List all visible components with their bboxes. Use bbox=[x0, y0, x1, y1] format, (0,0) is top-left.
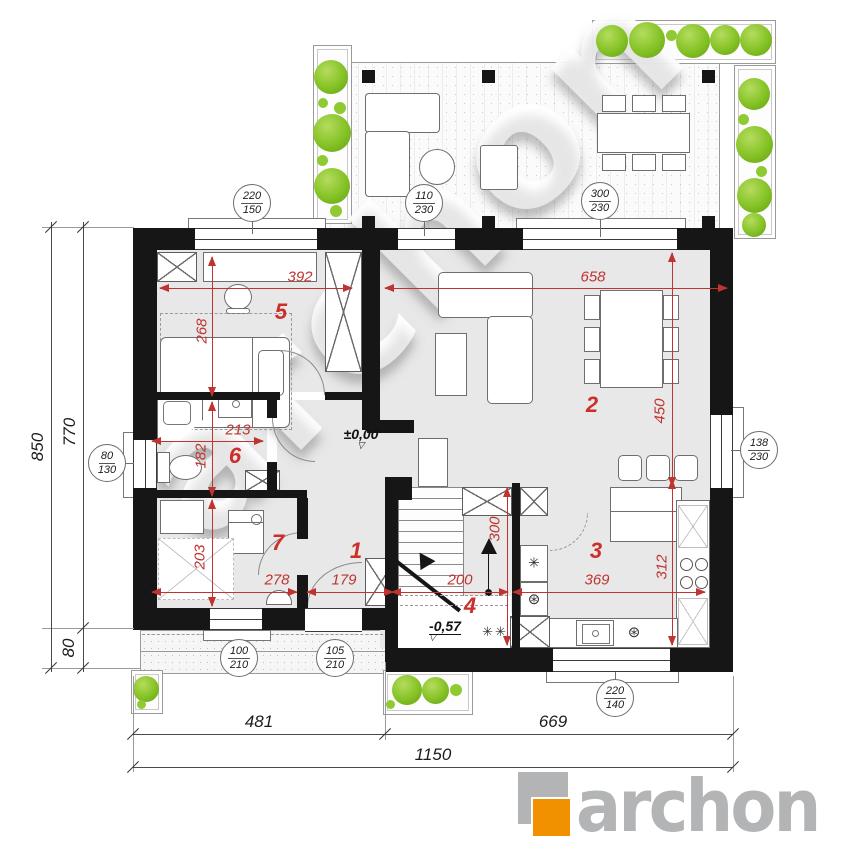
leaf bbox=[334, 102, 346, 114]
badge-height: 150 bbox=[243, 204, 261, 217]
dim-line-850 bbox=[51, 222, 52, 672]
window-kitchen bbox=[553, 648, 670, 672]
stair-top-storage bbox=[520, 487, 548, 516]
room-number-7: 7 bbox=[272, 530, 284, 556]
dim-line-312 bbox=[672, 480, 673, 645]
dim-line-179 bbox=[307, 592, 393, 593]
dim-line-658 bbox=[385, 288, 727, 289]
leaf bbox=[318, 98, 328, 108]
bush bbox=[736, 126, 773, 163]
leaf bbox=[756, 166, 767, 177]
wall-int bbox=[267, 462, 277, 498]
wall-int bbox=[512, 483, 520, 652]
dim-line-278 bbox=[152, 592, 297, 593]
wall bbox=[133, 228, 157, 440]
dim-369: 369 bbox=[584, 572, 609, 589]
window-bedroom bbox=[195, 228, 317, 250]
dim-658: 658 bbox=[580, 269, 605, 286]
leader bbox=[252, 220, 253, 234]
bar-stool bbox=[674, 455, 698, 481]
dishwasher-symbol: ⊛ bbox=[628, 623, 641, 641]
kitchen-cabinet bbox=[678, 598, 708, 645]
level-entry: -0,57 ▽ bbox=[429, 618, 461, 640]
wall-int bbox=[297, 498, 308, 539]
terrace-sofa-top bbox=[365, 93, 440, 133]
hob-burner bbox=[680, 558, 693, 571]
hob-burner bbox=[695, 576, 708, 589]
terrace-chair bbox=[602, 95, 626, 112]
bush bbox=[676, 24, 710, 58]
dim-line-203 bbox=[212, 500, 213, 606]
dim-450: 450 bbox=[652, 398, 669, 423]
wall bbox=[710, 228, 733, 415]
double-star-symbol: ✳✳ bbox=[482, 624, 508, 640]
ext-dim-481: 481 bbox=[245, 712, 273, 732]
badge-width: 80 bbox=[99, 450, 115, 464]
bush bbox=[422, 677, 449, 704]
leaf bbox=[137, 700, 146, 709]
bush bbox=[738, 78, 770, 110]
washing-machine-line bbox=[229, 522, 263, 523]
bush bbox=[710, 25, 740, 55]
badge-height: 140 bbox=[606, 699, 624, 712]
ext-dim-80: 80 bbox=[59, 639, 79, 658]
hob-burner bbox=[680, 576, 693, 589]
bush bbox=[314, 60, 348, 94]
dining-chair bbox=[584, 359, 600, 384]
terrace-door bbox=[398, 228, 455, 250]
sink-drain bbox=[592, 630, 599, 637]
room-number-2: 2 bbox=[586, 392, 598, 418]
tall-cabinet-fridge bbox=[418, 438, 448, 487]
badge-width: 100 bbox=[228, 645, 250, 659]
ext-line bbox=[385, 662, 386, 740]
bar-stool bbox=[618, 455, 642, 481]
window-bath bbox=[133, 440, 157, 488]
dim-line-392 bbox=[160, 288, 352, 289]
dining-chair bbox=[663, 327, 679, 352]
dim-line-450 bbox=[672, 253, 673, 486]
badge-height: 130 bbox=[98, 464, 116, 477]
bedroom-cabinet bbox=[157, 252, 197, 282]
dim-line-182 bbox=[212, 402, 213, 496]
sofa-side bbox=[487, 316, 533, 404]
dim-182: 182 bbox=[193, 443, 210, 468]
terrace-coffee-table bbox=[419, 149, 455, 185]
bush bbox=[313, 114, 351, 152]
bush bbox=[314, 168, 350, 204]
terrace-chair bbox=[602, 154, 626, 171]
window-utility bbox=[210, 608, 262, 630]
leaf bbox=[386, 700, 395, 709]
dim-312: 312 bbox=[654, 554, 671, 579]
opening-badge-terrace-door: 110 230 bbox=[405, 184, 443, 222]
ext-dim-669: 669 bbox=[539, 712, 567, 732]
dim-line-268 bbox=[212, 257, 213, 396]
star-symbol: ✳ bbox=[528, 555, 540, 572]
terrace-armchair bbox=[480, 145, 518, 190]
dim-line-481-669 bbox=[133, 734, 733, 735]
dim-278: 278 bbox=[264, 572, 289, 589]
bar-stool bbox=[646, 455, 670, 481]
badge-width: 300 bbox=[589, 188, 611, 202]
ext-line bbox=[133, 676, 134, 772]
badge-height: 230 bbox=[415, 204, 433, 217]
wall bbox=[262, 608, 305, 630]
dim-268: 268 bbox=[194, 318, 211, 343]
leader bbox=[600, 218, 601, 237]
badge-width: 110 bbox=[413, 190, 435, 204]
room-number-5: 5 bbox=[275, 299, 287, 325]
level-triangle-icon: ▽ bbox=[344, 442, 379, 448]
wall bbox=[670, 648, 733, 672]
ext-line bbox=[42, 628, 134, 629]
badge-height: 210 bbox=[326, 659, 344, 672]
wall-int bbox=[325, 392, 362, 400]
ext-dim-1150: 1150 bbox=[415, 745, 452, 765]
dim-392: 392 bbox=[287, 269, 312, 286]
dim-line-213 bbox=[152, 441, 263, 442]
level-main: ±0,00 ▽ bbox=[344, 426, 379, 448]
wall-int bbox=[362, 250, 380, 430]
logo-orange-square bbox=[531, 797, 570, 836]
wall-int bbox=[385, 500, 398, 648]
opening-badge-bath-window: 80 130 bbox=[88, 444, 126, 482]
dining-chair bbox=[663, 295, 679, 320]
ext-line bbox=[42, 668, 141, 669]
terrace-column bbox=[362, 70, 375, 83]
stair-up-arrow-stem bbox=[488, 552, 489, 592]
stair-dashed-2 bbox=[400, 605, 508, 606]
terrace-chair bbox=[632, 95, 656, 112]
leaf bbox=[330, 205, 342, 217]
terrace-chair bbox=[662, 95, 686, 112]
terrace-chair bbox=[632, 154, 656, 171]
dim-line-200 bbox=[392, 592, 508, 593]
leader bbox=[424, 220, 425, 236]
terrace-sofa-side bbox=[365, 131, 410, 197]
terrace-chair bbox=[662, 154, 686, 171]
washing-machine-knob bbox=[251, 514, 262, 525]
ext-dim-770: 770 bbox=[60, 418, 80, 446]
wall-int bbox=[385, 477, 412, 500]
entry-door bbox=[305, 608, 362, 632]
bush bbox=[596, 25, 628, 57]
room-number-4: 4 bbox=[464, 593, 476, 619]
brand-logo: archon bbox=[576, 764, 819, 848]
ext-dim-850: 850 bbox=[28, 433, 48, 461]
leaf bbox=[317, 155, 328, 166]
ext-line bbox=[42, 227, 134, 228]
opening-badge-bedroom-window: 220 150 bbox=[233, 184, 271, 222]
room-number-1: 1 bbox=[350, 538, 362, 564]
dining-chair bbox=[663, 359, 679, 384]
dim-line-770 bbox=[83, 222, 84, 672]
dining-chair bbox=[584, 327, 600, 352]
dining-table bbox=[600, 290, 663, 388]
leaf bbox=[450, 684, 462, 696]
dim-line-300 bbox=[507, 488, 508, 645]
wall-int bbox=[133, 392, 280, 400]
bush bbox=[133, 676, 159, 702]
opening-badge-dining-window: 138 230 bbox=[740, 431, 778, 469]
sofa-top bbox=[438, 272, 533, 318]
dim-line-369 bbox=[513, 592, 705, 593]
dining-chair bbox=[584, 295, 600, 320]
washbasin-drain bbox=[232, 400, 240, 408]
wall bbox=[133, 608, 210, 630]
wall bbox=[385, 648, 553, 672]
bush bbox=[737, 178, 772, 213]
leaf bbox=[738, 114, 749, 125]
wall bbox=[317, 228, 398, 250]
hob-burner bbox=[695, 558, 708, 571]
opening-badge-kitchen-window: 220 140 bbox=[596, 679, 634, 717]
dim-213: 213 bbox=[225, 422, 250, 439]
wall bbox=[710, 488, 733, 672]
dim-203: 203 bbox=[192, 544, 209, 569]
window-dining bbox=[710, 415, 733, 488]
wall-int bbox=[267, 392, 277, 418]
coffee-table bbox=[435, 333, 467, 396]
dim-300: 300 bbox=[487, 516, 504, 541]
bush bbox=[740, 24, 772, 56]
stair-dashed-1 bbox=[400, 595, 508, 596]
bush bbox=[392, 675, 422, 705]
opening-badge-living-window: 300 230 bbox=[581, 182, 619, 220]
bush bbox=[629, 22, 665, 58]
dim-200: 200 bbox=[447, 572, 472, 589]
opening-badge-entry-door: 105 210 bbox=[316, 639, 354, 677]
vanity-sink bbox=[163, 401, 191, 425]
terrace-column bbox=[482, 70, 495, 83]
badge-width: 105 bbox=[324, 645, 346, 659]
badge-width: 138 bbox=[748, 437, 770, 451]
badge-height: 230 bbox=[750, 451, 768, 464]
opening-badge-utility-window: 100 210 bbox=[220, 639, 258, 677]
wall-int bbox=[133, 490, 307, 498]
utility-cabinet bbox=[160, 500, 204, 534]
kitchen-cabinet bbox=[678, 505, 708, 548]
badge-width: 220 bbox=[604, 685, 626, 699]
ext-line bbox=[733, 676, 734, 772]
badge-height: 210 bbox=[230, 659, 248, 672]
terrace-column bbox=[702, 70, 715, 83]
terrace-dining-table bbox=[597, 113, 690, 153]
floor-plan-canvas: archon bbox=[0, 0, 853, 853]
bedroom-wardrobe bbox=[325, 252, 362, 372]
bush bbox=[742, 213, 766, 237]
room-number-3: 3 bbox=[590, 538, 602, 564]
badge-height: 230 bbox=[591, 202, 609, 215]
wall bbox=[455, 228, 523, 250]
badge-width: 220 bbox=[241, 190, 263, 204]
dim-179: 179 bbox=[331, 572, 356, 589]
room-number-6: 6 bbox=[229, 443, 241, 469]
bed-head-line bbox=[252, 338, 253, 427]
